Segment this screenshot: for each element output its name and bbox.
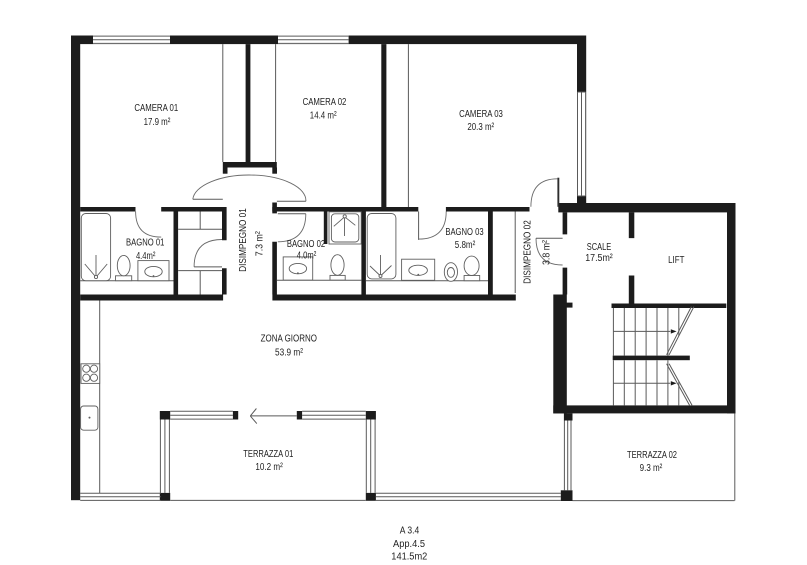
svg-text:TERRAZZA 02: TERRAZZA 02 bbox=[627, 450, 677, 461]
svg-text:10.2 m²: 10.2 m² bbox=[255, 462, 283, 473]
svg-text:BAGNO 01: BAGNO 01 bbox=[126, 238, 165, 249]
svg-text:141.5m2: 141.5m2 bbox=[391, 552, 427, 563]
svg-text:20.3 m²: 20.3 m² bbox=[467, 122, 494, 133]
svg-text:17.5m²: 17.5m² bbox=[585, 253, 613, 264]
svg-text:CAMERA 02: CAMERA 02 bbox=[303, 97, 347, 108]
svg-text:A 3.4: A 3.4 bbox=[400, 526, 420, 537]
svg-text:3.8 m²: 3.8 m² bbox=[541, 239, 552, 265]
svg-text:5.8m²: 5.8m² bbox=[455, 240, 476, 251]
svg-text:LIFT: LIFT bbox=[668, 255, 684, 266]
svg-text:TERRAZZA 01: TERRAZZA 01 bbox=[243, 449, 293, 460]
svg-text:App.4.5: App.4.5 bbox=[393, 539, 425, 550]
svg-text:BAGNO 02: BAGNO 02 bbox=[287, 239, 326, 250]
svg-text:53.9 m²: 53.9 m² bbox=[275, 347, 303, 358]
svg-text:DISIMPEGNO 02: DISIMPEGNO 02 bbox=[523, 220, 534, 284]
svg-text:17.9 m²: 17.9 m² bbox=[144, 117, 171, 128]
svg-text:SCALE: SCALE bbox=[587, 242, 612, 253]
svg-text:9.3 m²: 9.3 m² bbox=[640, 463, 663, 474]
svg-text:ZONA GIORNO: ZONA GIORNO bbox=[261, 334, 317, 345]
svg-text:7.3 m²: 7.3 m² bbox=[255, 231, 266, 257]
svg-text:14.4 m²: 14.4 m² bbox=[310, 111, 337, 122]
svg-text:4.0m²: 4.0m² bbox=[297, 251, 317, 262]
svg-text:BAGNO 03: BAGNO 03 bbox=[445, 227, 484, 238]
svg-text:CAMERA 03: CAMERA 03 bbox=[459, 109, 503, 120]
svg-text:CAMERA 01: CAMERA 01 bbox=[134, 103, 178, 114]
svg-text:4.4m²: 4.4m² bbox=[136, 251, 156, 262]
svg-text:DISIMPEGNO 01: DISIMPEGNO 01 bbox=[238, 208, 249, 272]
